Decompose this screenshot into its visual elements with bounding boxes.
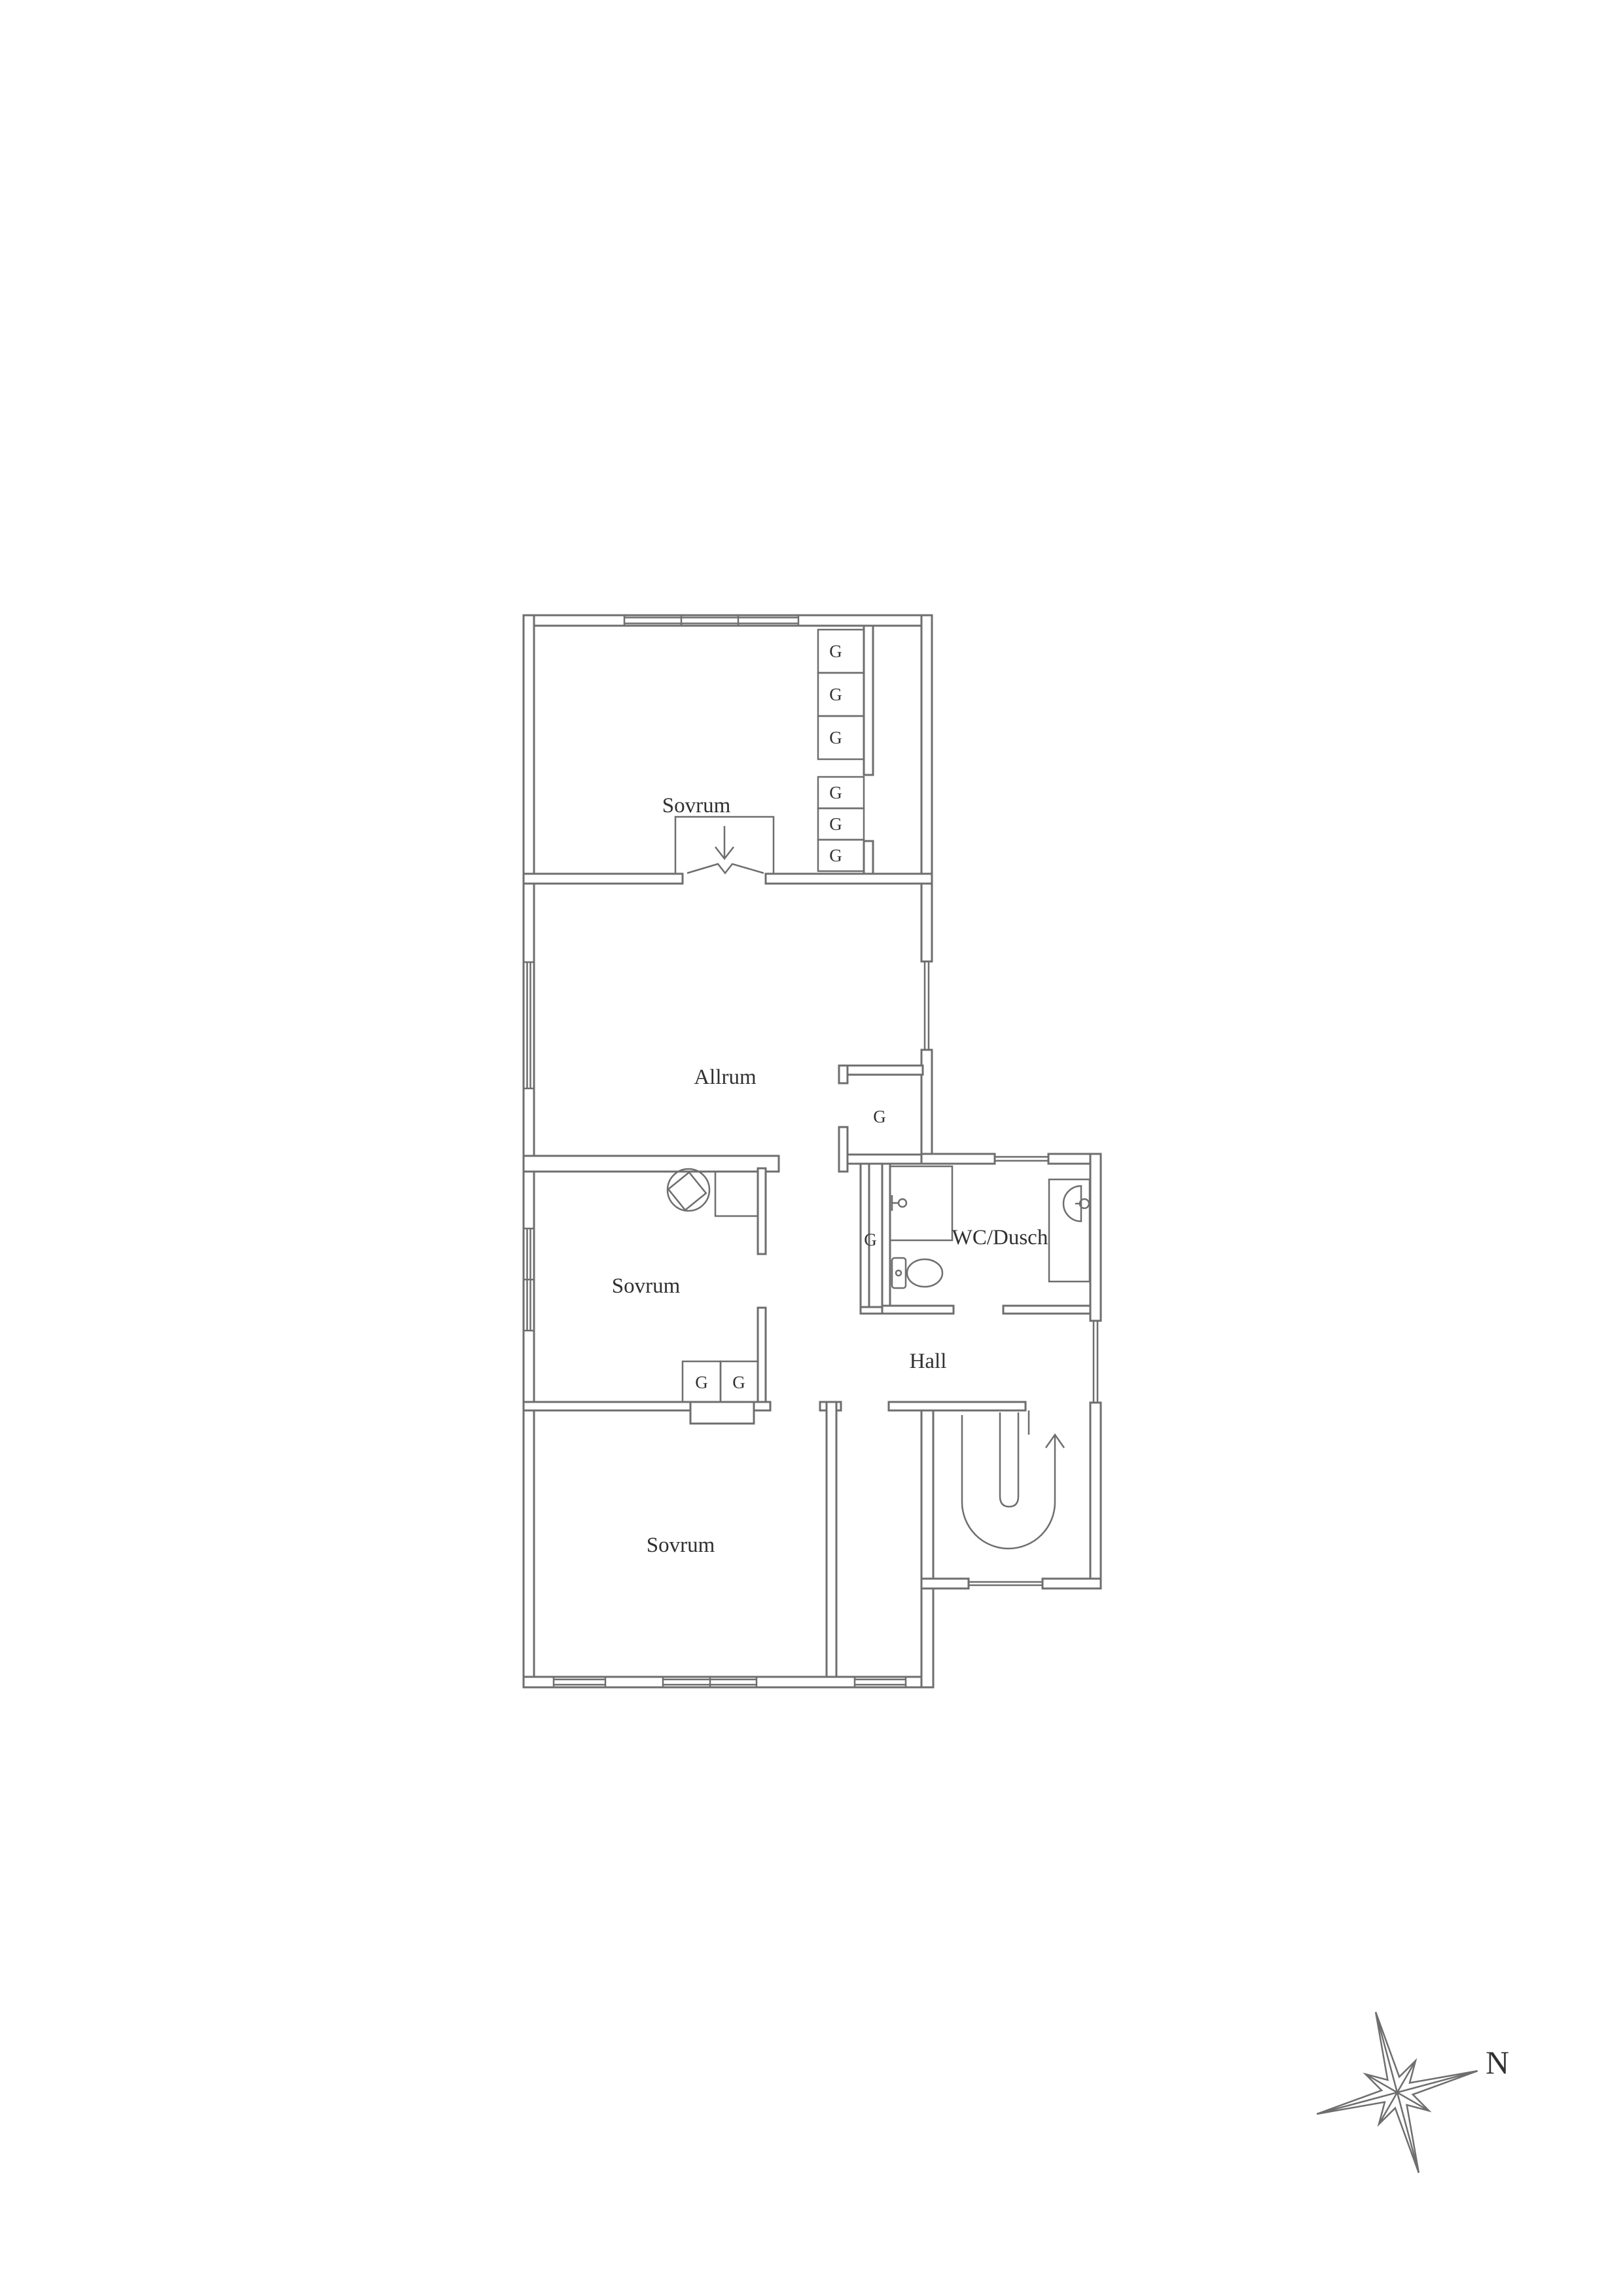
closet-g-label: G — [864, 1230, 877, 1249]
wall-segment — [839, 1066, 923, 1075]
stair-newel — [1000, 1412, 1018, 1507]
wall-segment — [524, 1156, 779, 1172]
closet-g-label: G — [695, 1372, 708, 1392]
room-label-wc-dusch: WC/Dusch — [952, 1226, 1048, 1249]
staircase — [962, 1410, 1064, 1549]
wall-segment — [1090, 1154, 1101, 1321]
room-label-sovrum-middle: Sovrum — [612, 1274, 681, 1298]
wall-segment — [921, 615, 932, 961]
wall-segment — [1090, 1403, 1101, 1588]
wall-segment — [864, 841, 873, 874]
wall-segment — [882, 1164, 890, 1314]
wall-segment — [758, 1308, 766, 1410]
door-leaf-lines — [687, 864, 764, 873]
wall-segment — [839, 1155, 921, 1164]
entrance-door-symbol — [675, 817, 774, 874]
floor-plan: Sovrum Allrum Sovrum WC/Dusch Hall Sovru… — [0, 0, 1623, 2296]
wall-segment — [827, 1402, 836, 1677]
wall-segment — [839, 1066, 847, 1083]
wall-segment — [524, 615, 534, 1687]
room-label-sovrum-top: Sovrum — [662, 794, 731, 817]
closet-g-label: G — [829, 641, 842, 661]
compass-north-label: N — [1486, 2044, 1509, 2081]
wall-segment — [882, 1306, 954, 1314]
closet-g-label: G — [829, 783, 842, 802]
closet-g-label: G — [829, 814, 842, 834]
wall-segment — [1043, 1579, 1101, 1588]
room-label-sovrum-bottom: Sovrum — [647, 1534, 715, 1557]
wall-segment — [766, 874, 932, 884]
room-label-hall: Hall — [910, 1350, 947, 1373]
wall-segment — [921, 1402, 933, 1687]
wall-segment — [1003, 1306, 1090, 1314]
chimney-breast — [690, 1402, 754, 1424]
wall-segment — [758, 1168, 766, 1254]
closet-g-label: G — [829, 728, 842, 747]
wall-segment — [889, 1402, 1026, 1410]
wall-segment — [921, 1154, 995, 1164]
window — [921, 961, 932, 1050]
toilet-icon — [892, 1258, 942, 1288]
walls — [524, 615, 1101, 1687]
wall-segment — [524, 874, 683, 884]
window — [995, 1154, 1048, 1164]
closet-g-label: G — [829, 846, 842, 865]
washbasin-icon — [1049, 1179, 1090, 1282]
compass-rose — [1295, 1990, 1499, 2194]
tiled-stove-icon — [666, 1169, 709, 1212]
wall-step-line — [715, 1172, 758, 1216]
window — [1090, 1321, 1101, 1403]
wall-segment — [524, 1677, 932, 1687]
closet-g-label: G — [873, 1107, 886, 1126]
wall-segment — [864, 626, 873, 775]
room-label-allrum: Allrum — [694, 1066, 757, 1089]
stair-walk-line — [962, 1415, 1055, 1549]
windows — [524, 615, 1101, 1687]
closet-g-label: G — [829, 685, 842, 704]
window — [969, 1579, 1043, 1588]
shower-icon — [890, 1166, 952, 1240]
wall-segment — [921, 1579, 969, 1588]
wall-segment — [839, 1127, 847, 1172]
closet-g-label: G — [732, 1372, 745, 1392]
